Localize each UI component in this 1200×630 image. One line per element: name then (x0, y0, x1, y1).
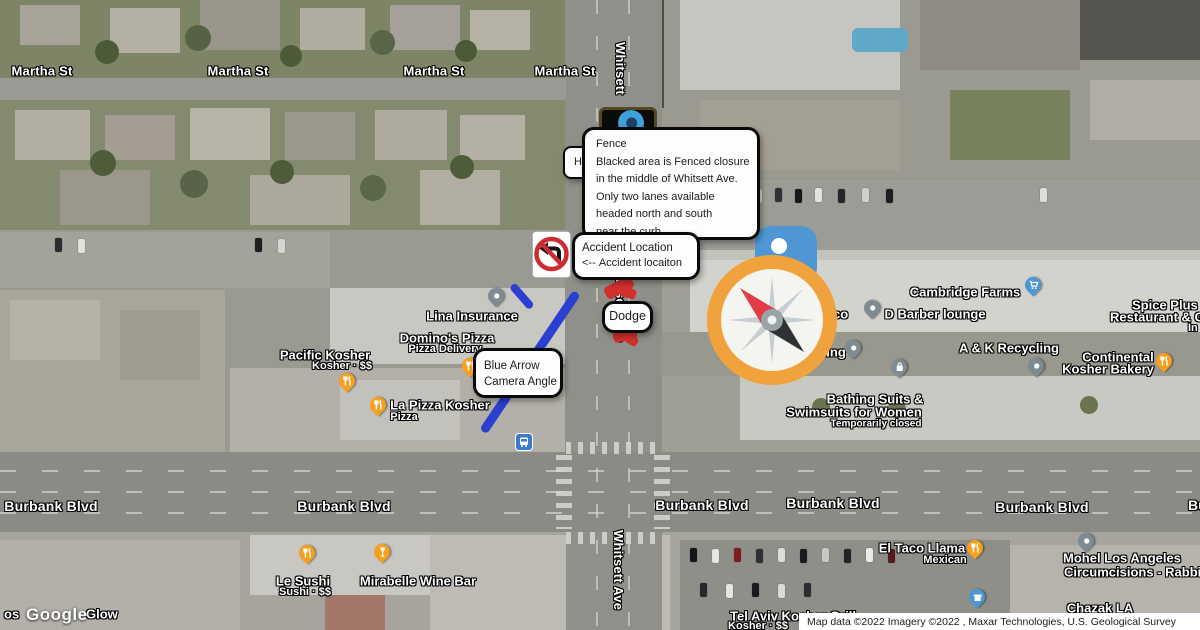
watermark-overlap-suffix: Glow (86, 607, 118, 622)
poi-label-mohel-2[interactable]: Circumcisions - Rabbi. (1064, 565, 1200, 580)
street-label-burbank-partial: Bu (1188, 497, 1200, 513)
poi-label-d-barber-lounge[interactable]: D Barber lounge (884, 307, 985, 322)
accident-location-callout: Accident Location <-- Accident locaiton (572, 232, 700, 280)
poi-label-spice-plus-3: In (1188, 322, 1198, 334)
compass-rose-icon (706, 254, 838, 386)
street-label-burbank-2: Burbank Blvd (297, 498, 390, 514)
poi-label-lina-insurance[interactable]: Lina Insurance (426, 309, 518, 324)
poi-status-temporarily-closed: Temporarily closed (831, 419, 922, 430)
fence-callout-title: Fence (596, 136, 749, 154)
poi-sub-le-sushi: Sushi · $$ (279, 586, 331, 598)
bus-stop-icon[interactable] (515, 433, 533, 451)
street-label-martha-2: Martha St (207, 64, 268, 79)
poi-label-cambridge-farms[interactable]: Cambridge Farms (910, 285, 1021, 300)
street-label-martha-1: Martha St (11, 64, 72, 79)
no-left-turn-sign-icon (531, 230, 572, 279)
watermark-overlap-prefix: os (4, 607, 19, 622)
google-watermark: Google (26, 605, 88, 625)
poi-sub-dominos: Pizza Delivery (408, 343, 481, 355)
poi-label-bathing-suits-2[interactable]: Swimsuits for Women (786, 405, 922, 420)
poi-label-ak-recycling[interactable]: A & K Recycling (959, 341, 1059, 356)
satellite-map[interactable]: Martha St Martha St Martha St Martha St … (0, 0, 1200, 630)
poi-label-mohel[interactable]: Mohel Los Angeles (1063, 551, 1181, 566)
fence-callout: Fence Blacked area is Fenced closure in … (582, 127, 760, 240)
street-label-burbank-1: Burbank Blvd (4, 498, 97, 514)
poi-sub-el-taco-llama: Mexican (923, 554, 966, 566)
poi-label-kosher-bakery[interactable]: Kosher Bakery (1062, 362, 1154, 377)
accident-arrow: <-- (582, 257, 596, 269)
street-label-whitsett-bottom: Whitsett Ave (611, 530, 626, 610)
street-label-whitsett-top: Whitsett (613, 42, 628, 95)
map-attribution: Map data ©2022 Imagery ©2022 , Maxar Tec… (799, 613, 1200, 630)
street-label-martha-3: Martha St (403, 64, 464, 79)
poi-sub-la-pizza-kosher: Pizza (390, 411, 418, 423)
street-label-martha-4: Martha St (534, 64, 595, 79)
poi-label-spice-plus-2[interactable]: Restaurant & G (1110, 310, 1200, 325)
street-label-burbank-4: Burbank Blvd (786, 495, 879, 511)
street-label-burbank-5: Burbank Blvd (995, 499, 1088, 515)
poi-sub-pacific-kosher: Kosher · $$ (312, 360, 372, 372)
street-label-burbank-3: Burbank Blvd (655, 497, 748, 513)
dodge-callout: Dodge (602, 301, 653, 333)
poi-label-mirabelle[interactable]: Mirabelle Wine Bar (360, 574, 476, 589)
blue-arrow-camera-callout: Blue Arrow Camera Angle (473, 348, 563, 398)
poi-sub-tel-aviv-grill: Kosher · $$ (728, 620, 788, 630)
